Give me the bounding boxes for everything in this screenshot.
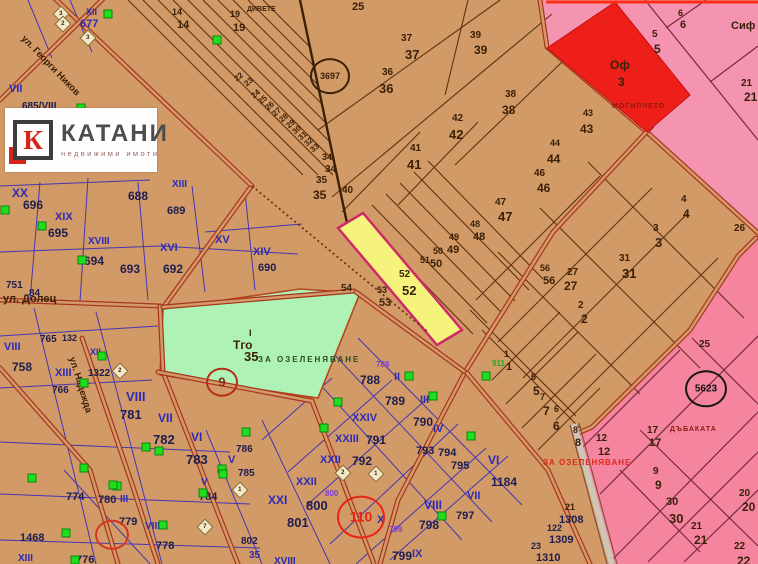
parcel-label: XXII: [296, 477, 317, 488]
green-marker-icon: [429, 392, 438, 401]
parcel-label: 802: [241, 537, 258, 547]
green-marker-icon: [334, 398, 343, 407]
parcel-label: 22: [737, 555, 750, 564]
locality-label: Сиф: [731, 21, 755, 32]
parcel-label: V: [201, 478, 208, 488]
green-marker-icon: [159, 521, 168, 530]
parcel-label: 780: [98, 495, 116, 506]
parcel-label: 794: [438, 448, 456, 459]
parcel-label: 5: [652, 30, 658, 40]
parcel-label: 4: [681, 195, 687, 205]
house-number-text: 1: [374, 471, 377, 477]
parcel-label: 793: [416, 446, 434, 457]
green-marker-icon: [71, 556, 80, 564]
parcel-label: 799: [389, 526, 402, 534]
parcel-label: 132: [62, 334, 77, 343]
parcel-label: 758: [12, 361, 32, 373]
parcel-label: 39: [474, 44, 487, 56]
parcel-label: 21: [565, 503, 575, 512]
parcel-label: 9: [655, 479, 662, 491]
parcel-label: 5: [654, 43, 661, 55]
parcel-label: 766: [52, 386, 69, 396]
parcel-label: 3: [618, 76, 625, 88]
house-number-text: 2: [118, 368, 121, 374]
parcel-label: 53: [377, 286, 387, 295]
parcel-label: 43: [583, 109, 593, 118]
parcel-label: 6: [554, 405, 559, 414]
parcel-label: 42: [452, 114, 463, 124]
parcel-label: 41: [410, 144, 421, 154]
parcel-label: 21: [694, 534, 707, 546]
parcel-label: 800: [306, 499, 328, 512]
parcel-label: 1310: [536, 553, 560, 564]
parcel-label: 54: [341, 284, 352, 294]
logo-corner-bracket-icon: [9, 147, 26, 164]
green-marker-icon: [142, 443, 151, 452]
parcel-label: 40: [342, 186, 353, 196]
parcel-label: 1322: [88, 369, 110, 379]
parcel-label: 7: [540, 393, 545, 402]
parcel-label: 52: [399, 270, 410, 280]
parcel-label: 20: [739, 489, 750, 499]
parcel-label: VI: [488, 454, 499, 466]
parcel-label: 48: [470, 220, 480, 229]
parcel-label: 27: [564, 280, 577, 292]
cadastral-map: 2514141919ДИВЕТЕ222324252627282930313233…: [0, 0, 758, 564]
parcel-label: 53: [379, 298, 391, 309]
logo-brand-text: КАТАНИ: [61, 122, 149, 146]
parcel-label: 25: [352, 2, 364, 13]
zone-label: ЗА ОЗЕЛЕНЯВАНЕ: [543, 459, 631, 467]
parcel-label: 2: [581, 313, 588, 325]
parcel-label: XIII: [18, 554, 33, 564]
house-number-text: 1: [238, 487, 241, 493]
parcel-label: 26: [734, 224, 745, 234]
parcel-label: 12: [598, 447, 610, 458]
green-marker-icon: [80, 379, 89, 388]
parcel-label: 1184: [491, 476, 517, 488]
parcel-label: 56: [540, 264, 550, 273]
locality-label: ДИВЕТЕ: [247, 6, 276, 13]
parcel-label: 677: [80, 19, 98, 30]
parcel-label: Оф: [610, 59, 630, 71]
parcel-label: 801: [287, 516, 309, 529]
parcel-label: 46: [534, 169, 545, 179]
parcel-label: 42: [449, 128, 463, 141]
parcel-label: 789: [385, 395, 405, 407]
parcel-label: 34: [322, 153, 332, 162]
parcel-label: 35: [249, 551, 260, 561]
circled-label: 9: [206, 368, 238, 397]
parcel-label: 8: [573, 426, 578, 435]
parcel-label: 56: [543, 276, 555, 287]
parcel-label: 786: [236, 445, 253, 455]
parcel-label: XIV: [253, 247, 271, 258]
parcel-label: 751: [6, 281, 23, 291]
parcel-label: 781: [120, 408, 142, 421]
parcel-label: VII: [467, 491, 480, 502]
parcel-label: 49: [449, 233, 459, 242]
parcel-label: 1308: [559, 515, 583, 526]
parcel-label: 778: [156, 541, 174, 552]
parcel-label: 35: [316, 176, 327, 186]
parcel-label: VII: [9, 84, 22, 95]
green-marker-icon: [482, 372, 491, 381]
parcel-label: 1: [504, 350, 509, 359]
urban-parcel-lines: [0, 0, 522, 564]
parcel-label: 798: [419, 519, 439, 531]
circled-label: 3697: [310, 58, 350, 94]
parcel-label: XXIII: [335, 434, 359, 445]
parcel-label: XVIII: [274, 557, 296, 564]
parcel-label: VII: [158, 412, 173, 424]
parcel-label: 4: [683, 208, 690, 220]
street-label: ул. Долец: [3, 294, 56, 305]
locality-label: ДЪБАКАТА: [670, 426, 717, 433]
parcel-label: 774: [66, 492, 84, 503]
green-marker-icon: [38, 222, 47, 231]
parcel-label: 50: [430, 259, 442, 270]
parcel-label: 9: [653, 467, 659, 477]
parcel-label: 35: [244, 350, 258, 363]
parcel-label: 36: [382, 68, 393, 78]
green-marker-icon: [155, 447, 164, 456]
parcel-label: 795: [451, 461, 469, 472]
parcel-label: 5: [531, 373, 536, 382]
parcel-label: 1468: [20, 533, 44, 544]
parcel-label: 30: [669, 512, 683, 525]
parcel-label: XXI: [268, 494, 287, 506]
parcel-label: 49: [447, 245, 459, 256]
parcel-label: 52: [402, 284, 416, 297]
logo-k-icon: К: [13, 120, 53, 160]
parcel-label: 21: [744, 91, 757, 103]
parcel-label: VIII: [4, 342, 21, 353]
parcel-label: 20: [742, 501, 755, 513]
parcel-label: 25: [699, 340, 710, 350]
parcel-label: 5: [533, 385, 540, 397]
parcel-label: 783: [186, 453, 208, 466]
parcel-label: 17: [649, 438, 661, 449]
parcel-label: 12: [596, 434, 607, 444]
house-number-text: 2: [61, 21, 64, 27]
parcel-label: 22: [734, 542, 745, 552]
parcel-label: 31: [619, 254, 630, 264]
green-marker-icon: [242, 428, 251, 437]
parcel-label: 6: [678, 9, 683, 18]
parcel-label: 14: [172, 8, 182, 17]
green-marker-icon: [199, 489, 208, 498]
house-number-text: 3: [86, 35, 89, 41]
parcel-label: II: [394, 372, 400, 383]
parcel-label: 692: [163, 263, 183, 275]
parcel-label: 51: [420, 256, 430, 265]
house-number-text: 7: [203, 524, 206, 530]
parcel-label: 785: [238, 469, 255, 479]
parcel-label: 38: [505, 90, 516, 100]
parcel-label: 14: [177, 20, 189, 31]
parcel-label: 8: [575, 438, 581, 449]
parcel-label: 46: [537, 182, 550, 194]
parcel-label: 50: [433, 247, 443, 256]
parcel-label: 37: [405, 48, 419, 61]
parcel-label: 911: [492, 360, 505, 368]
parcel-label: 34: [325, 165, 336, 175]
parcel-label: 3: [653, 224, 659, 234]
parcel-label: 788: [360, 374, 380, 386]
parcel-label: 689: [167, 206, 185, 217]
parcel-label: 696: [23, 199, 43, 211]
green-marker-icon: [104, 10, 113, 19]
parcel-label: XVIII: [88, 237, 110, 247]
parcel-label: 48: [473, 232, 485, 243]
green-marker-icon: [109, 481, 118, 490]
parcel-label: 790: [413, 416, 433, 428]
parcel-label: 21: [691, 522, 702, 532]
parcel-label: 44: [547, 153, 560, 165]
katani-logo: К КАТАНИ недвижими имоти: [5, 108, 157, 172]
parcel-label: 23: [531, 542, 541, 551]
green-marker-icon: [62, 529, 71, 538]
parcel-label: XII: [86, 8, 97, 17]
green-marker-icon: [320, 424, 329, 433]
parcel-label: 38: [502, 104, 515, 116]
parcel-label: 39: [470, 31, 481, 41]
green-marker-icon: [78, 256, 87, 265]
parcel-label: 1309: [549, 535, 573, 546]
parcel-label: 17: [647, 426, 658, 436]
parcel-label: 1: [506, 362, 512, 373]
locality-label: МОГИЛЧЕТО: [612, 103, 665, 110]
parcel-label: XV: [215, 235, 230, 246]
parcel-label: IX: [412, 549, 422, 560]
green-marker-icon: [98, 352, 107, 361]
parcel-label: XIX: [55, 212, 73, 223]
parcel-label: 6: [680, 20, 686, 31]
parcel-label: 800: [325, 490, 338, 498]
parcel-label: 47: [498, 210, 512, 223]
green-marker-icon: [438, 512, 447, 521]
parcel-label: 19: [230, 10, 240, 19]
house-number-text: 2: [341, 470, 344, 476]
parcel-label: 2: [578, 301, 584, 311]
logo-tagline: недвижими имоти: [61, 149, 149, 158]
green-marker-icon: [28, 474, 37, 483]
parcel-label: V: [228, 455, 235, 466]
parcel-label: 799: [392, 550, 412, 562]
parcel-label: 694: [84, 255, 104, 267]
parcel-label: 36: [379, 82, 393, 95]
green-marker-icon: [213, 36, 222, 45]
parcel-label: 122: [547, 524, 562, 533]
parcel-label: 693: [120, 263, 140, 275]
parcel-label: 43: [580, 123, 593, 135]
parcel-label: 21: [741, 79, 752, 89]
logo-k-letter: К: [23, 127, 43, 154]
parcel-label: VIII: [424, 499, 442, 511]
parcel-label: 47: [495, 198, 506, 208]
parcel-label: 19: [233, 23, 245, 34]
parcel-label: I: [249, 329, 252, 338]
parcel-label: 6: [553, 420, 560, 432]
parcel-label: XVI: [160, 243, 178, 254]
parcel-label: XIII: [172, 180, 187, 190]
green-marker-icon: [219, 470, 228, 479]
green-marker-icon: [405, 372, 414, 381]
parcel-label: XXIV: [352, 413, 377, 424]
parcel-label: 695: [48, 227, 68, 239]
parcel-label: 27: [567, 268, 578, 278]
parcel-label: VI: [191, 431, 202, 443]
parcel-label: 782: [153, 433, 175, 446]
green-marker-icon: [467, 432, 476, 441]
parcel-label: 30: [666, 497, 678, 508]
parcel-label: 690: [258, 263, 276, 274]
green-marker-icon: [1, 206, 10, 215]
parcel-label: III: [120, 495, 128, 505]
parcel-label: 44: [550, 139, 560, 148]
parcel-label: VIII: [126, 390, 146, 403]
parcel-label: 791: [366, 434, 386, 446]
parcel-label: 41: [407, 158, 421, 171]
parcel-label: 688: [128, 190, 148, 202]
parcel-label: 3: [655, 236, 662, 249]
parcel-label: 788: [376, 361, 389, 369]
parcel-label: IV: [433, 424, 443, 435]
circled-label: 110: [337, 496, 385, 539]
green-marker-icon: [80, 464, 89, 473]
parcel-label: 31: [622, 267, 636, 280]
parcel-label: 765: [40, 335, 57, 345]
parcel-label: XXII: [320, 455, 341, 466]
parcel-label: 797: [456, 511, 474, 522]
parcel-label: 37: [401, 34, 412, 44]
zone-label: ЗА ОЗЕЛЕНЯВАНЕ: [258, 356, 360, 364]
parcel-label: 792: [352, 455, 372, 467]
parcel-label: 7: [543, 405, 550, 417]
parcel-label: 35: [313, 189, 326, 201]
